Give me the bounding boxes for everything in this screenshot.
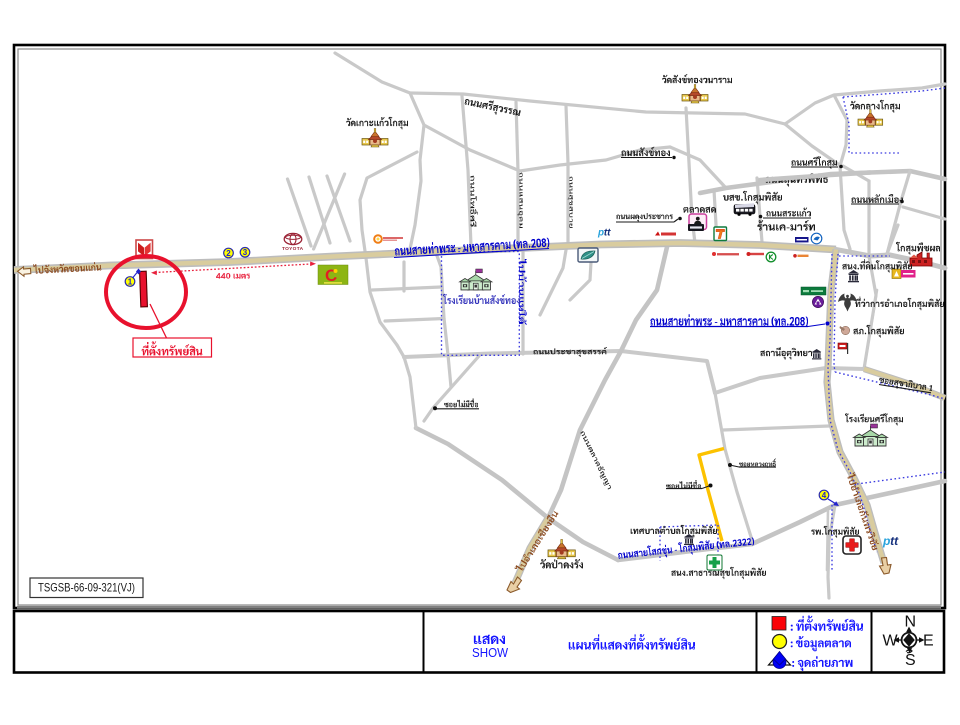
svg-text:E: E — [923, 633, 934, 650]
svg-text:3: 3 — [243, 248, 248, 257]
svg-text:N: N — [905, 614, 917, 631]
svg-text:p: p — [882, 534, 890, 548]
svg-text:S: S — [905, 652, 916, 669]
svg-text:TSGSB-66-09-321(VJ): TSGSB-66-09-321(VJ) — [38, 581, 135, 595]
svg-text:4: 4 — [822, 491, 827, 500]
svg-text:SHOW: SHOW — [472, 646, 508, 660]
svg-text:TOYOTA: TOYOTA — [282, 246, 304, 252]
svg-text:tt: tt — [604, 228, 611, 239]
svg-text:W: W — [883, 633, 899, 650]
svg-text:2: 2 — [226, 249, 231, 258]
svg-text:1: 1 — [128, 277, 133, 286]
svg-text:tt: tt — [890, 534, 899, 548]
svg-text:C: C — [325, 266, 337, 285]
